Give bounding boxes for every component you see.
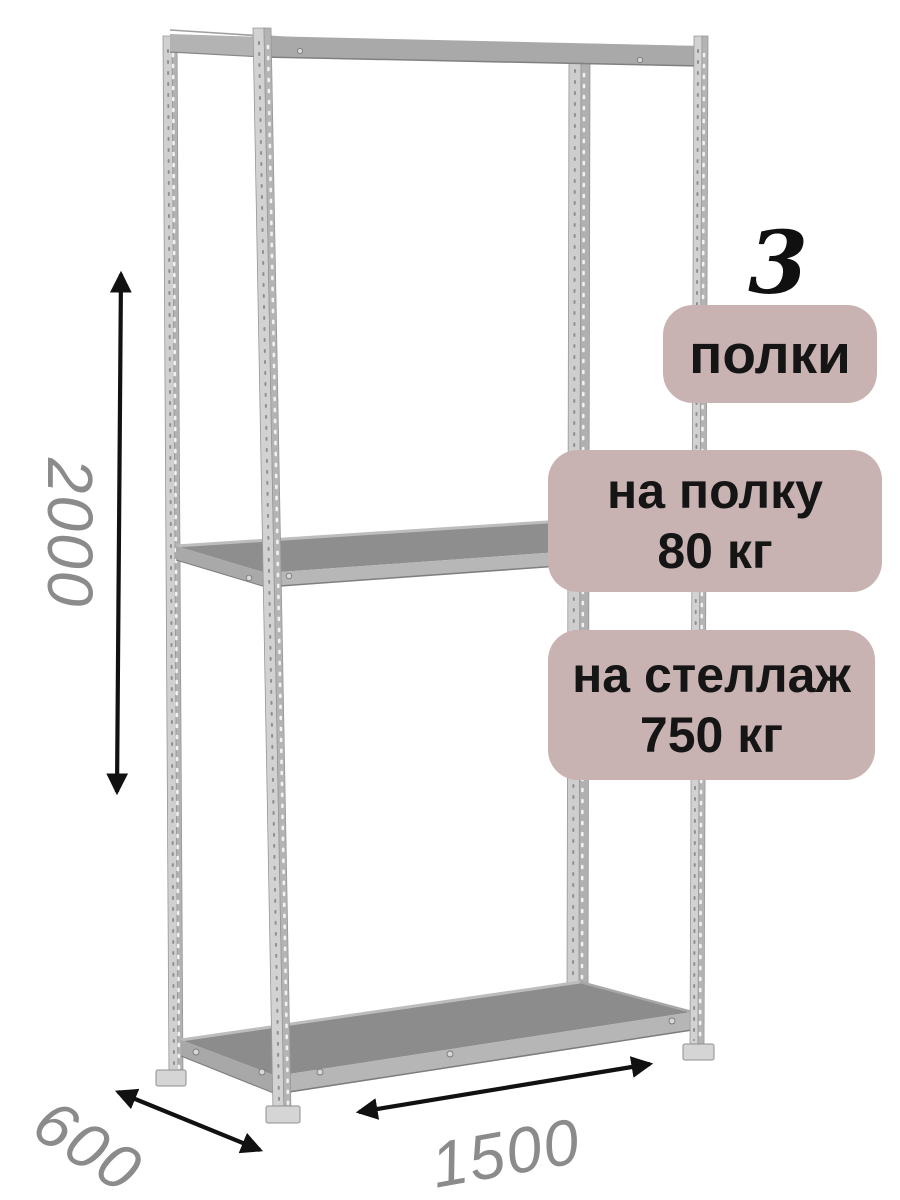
height-dimension-arrow [117,274,121,792]
load-per-rack-badge: на стеллаж 750 кг [548,630,875,780]
shelf-count-label: полки [663,321,877,387]
load-per-shelf-badge: на полку 80 кг [548,450,882,592]
shelf-bottom [181,982,692,1094]
rack-illustration [0,0,900,1200]
load-per-rack-value: 750 кг [548,705,875,765]
load-per-rack-label: на стеллаж [548,645,875,705]
product-diagram: 2000 600 1500 3 полки на полку 80 кг на … [0,0,900,1200]
load-per-shelf-label: на полку [548,461,882,521]
shelf-count-number: 3 [748,221,808,307]
load-per-shelf-value: 80 кг [548,521,882,581]
height-dimension-label: 2000 [38,458,102,608]
shelf-count-badge: полки [663,305,877,403]
shelf-top [170,30,700,66]
